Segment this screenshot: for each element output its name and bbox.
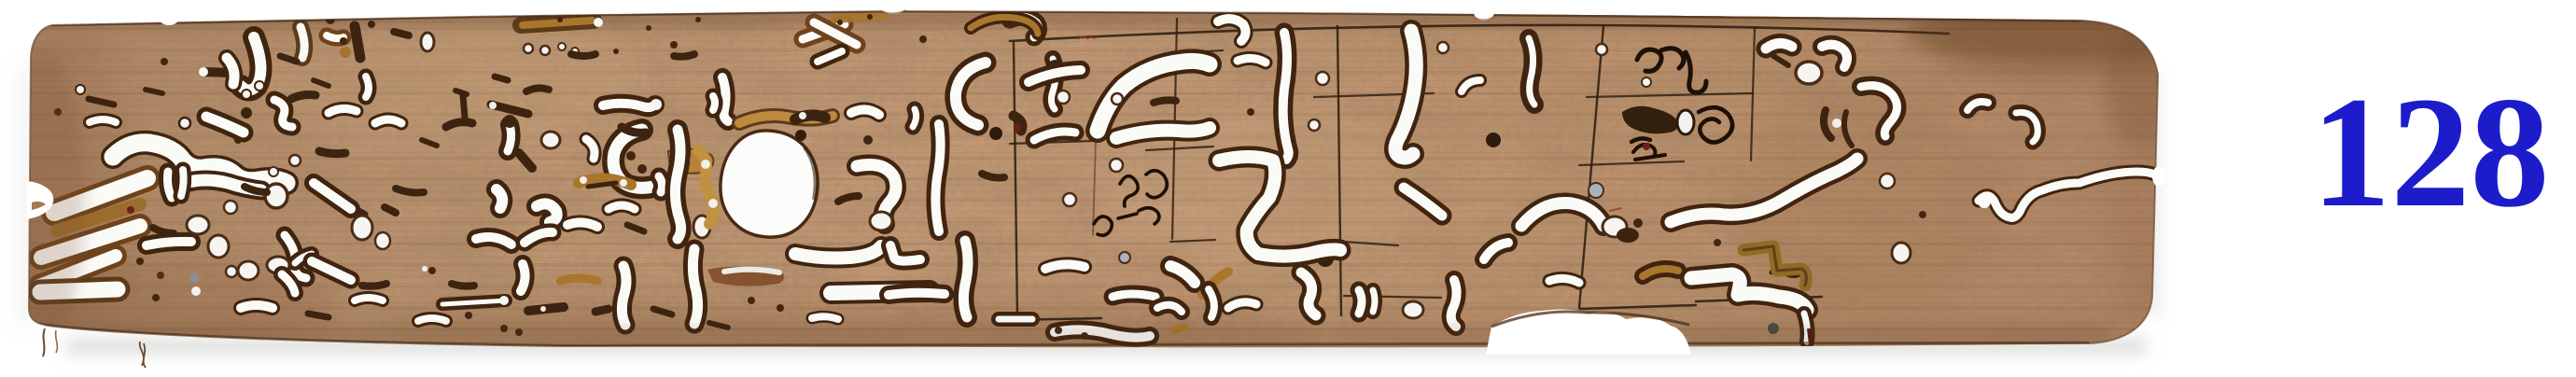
svg-text:128: 128 xyxy=(2312,64,2550,240)
